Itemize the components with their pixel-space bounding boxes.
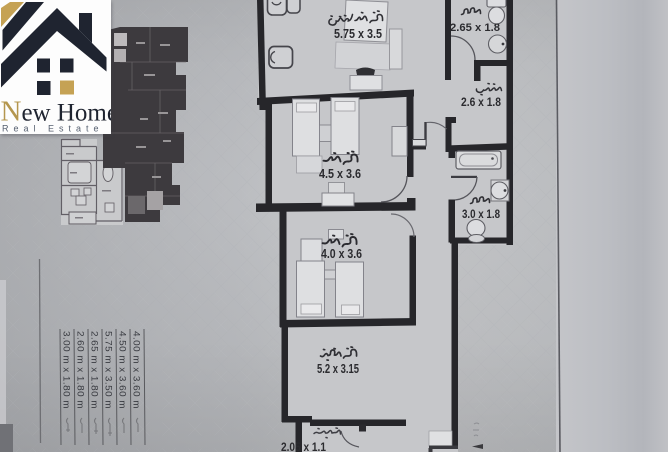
svg-text:4.00 m x 3.60 m: 4.00 m x 3.60 m — [132, 331, 142, 409]
svg-text:2.60 m x 1.80 m: 2.60 m x 1.80 m — [76, 331, 86, 409]
svg-text:2.6 x 1.8: 2.6 x 1.8 — [461, 97, 502, 109]
svg-text:3.00 m x 1.80 m: 3.00 m x 1.80 m — [62, 331, 72, 409]
svg-text:5.75 m x 3.50 m: 5.75 m x 3.50 m — [104, 331, 114, 409]
svg-text:2.05 x 1.1: 2.05 x 1.1 — [281, 440, 326, 452]
svg-text:5.75 x 3.5: 5.75 x 3.5 — [334, 26, 382, 41]
svg-text:4.50 m x 3.60 m: 4.50 m x 3.60 m — [118, 331, 128, 409]
svg-text:2.65 x 1.8: 2.65 x 1.8 — [450, 22, 500, 34]
svg-text:Real Estate: Real Estate — [2, 124, 104, 134]
svg-text:5.2 x 3.15: 5.2 x 3.15 — [317, 361, 359, 376]
svg-text:3.0 x 1.8: 3.0 x 1.8 — [462, 209, 501, 221]
svg-text:4.0 x 3.6: 4.0 x 3.6 — [321, 246, 362, 261]
svg-text:4.5 x 3.6: 4.5 x 3.6 — [319, 166, 361, 181]
svg-text:2.65 m x 1.80 m: 2.65 m x 1.80 m — [90, 331, 100, 409]
